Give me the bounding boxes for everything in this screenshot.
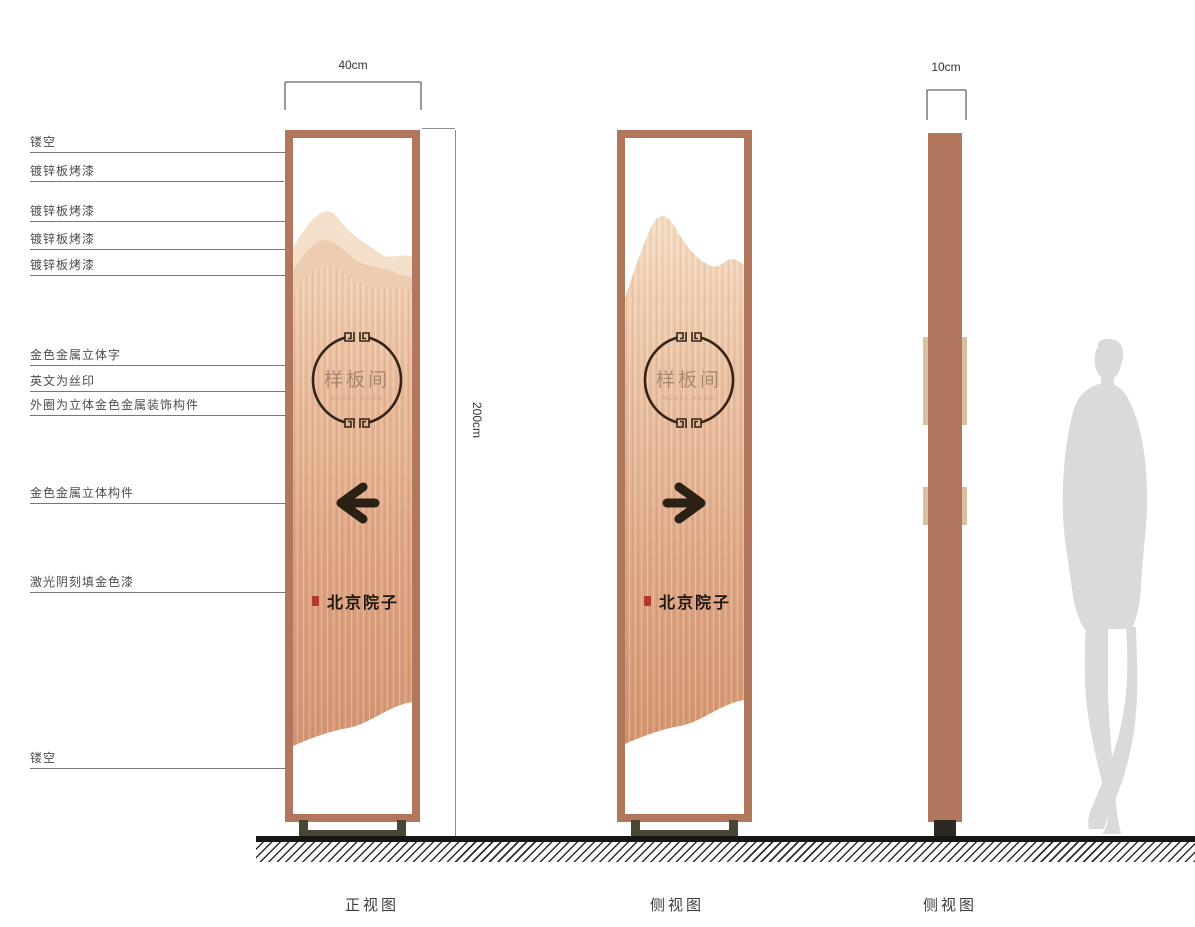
callout-label: 镂空 xyxy=(30,751,303,765)
brand-calligraphy: 北京院子 xyxy=(659,593,731,612)
callout-label: 镀锌板烤漆 xyxy=(30,164,284,178)
callout-galvanized-layer3: 镀锌板烤漆 xyxy=(30,258,293,276)
brand-calligraphy: 北京院子 xyxy=(327,593,399,612)
leader-line xyxy=(30,249,292,250)
callout-galvanized-layer1: 镀锌板烤漆 xyxy=(30,204,323,222)
room-name-text: 样板间 xyxy=(324,369,390,391)
base-bracket xyxy=(631,820,738,836)
leader-line xyxy=(30,181,284,182)
leader-line xyxy=(30,221,323,222)
seal-stamp xyxy=(644,596,651,606)
dimension-front-width: 40cm xyxy=(283,58,423,72)
foot-profile xyxy=(934,820,956,836)
room-name-text: 样板间 xyxy=(656,369,722,391)
callout-label: 外圈为立体金色金属装饰构件 xyxy=(30,398,302,412)
callout-label: 镀锌板烤漆 xyxy=(30,258,293,272)
dimension-side-width: 10cm xyxy=(919,60,973,74)
seal-stamp xyxy=(312,596,319,606)
dimension-tick-top xyxy=(422,128,455,129)
callout-label: 镀锌板烤漆 xyxy=(30,204,323,218)
leader-line xyxy=(30,275,293,276)
caption-side-view-2: 侧视图 xyxy=(905,894,995,915)
leader-line xyxy=(30,768,303,769)
brushed-texture xyxy=(625,216,744,744)
english-caption-text: MODEL ROOM xyxy=(331,396,384,402)
side-view-panel-2 xyxy=(918,125,974,840)
caption-side-view-1: 侧视图 xyxy=(632,894,722,915)
callout-label: 镀锌板烤漆 xyxy=(30,232,292,246)
dimension-height: 200cm xyxy=(470,402,484,438)
leader-line xyxy=(30,415,302,416)
callout-label: 激光阴刻填金色漆 xyxy=(30,575,300,589)
human-silhouette xyxy=(1048,337,1163,839)
callout-laser-engraving: 激光阴刻填金色漆 xyxy=(30,575,300,593)
callout-hollow-top: 镂空 xyxy=(30,135,305,153)
callout-galvanized-frame: 镀锌板烤漆 xyxy=(30,164,284,182)
front-view-panel: 样板间 MODEL ROOM 北京院子 xyxy=(285,130,420,840)
width-bracket-front xyxy=(283,80,423,114)
leader-line xyxy=(30,152,305,153)
base-bracket xyxy=(299,820,406,836)
leader-line xyxy=(30,592,300,593)
side-view-panel-1: 样板间 MODEL ROOM 北京院子 xyxy=(617,130,752,840)
caption-front-view: 正视图 xyxy=(327,894,417,915)
slab-profile xyxy=(928,133,962,822)
english-caption-text: MODEL ROOM xyxy=(663,396,716,402)
width-bracket-side xyxy=(925,88,969,124)
signage-design-sheet: 镂空 镀锌板烤漆 镀锌板烤漆 镀锌板烤漆 镀锌板烤漆 金色金属立体字 英文为丝印… xyxy=(0,0,1195,927)
callout-gold-ring: 外圈为立体金色金属装饰构件 xyxy=(30,398,302,416)
callout-galvanized-layer2: 镀锌板烤漆 xyxy=(30,232,292,250)
ground-hatch xyxy=(256,842,1195,862)
dimension-line-height xyxy=(455,130,456,836)
callout-hollow-bottom: 镂空 xyxy=(30,751,303,769)
callout-label: 镂空 xyxy=(30,135,305,149)
